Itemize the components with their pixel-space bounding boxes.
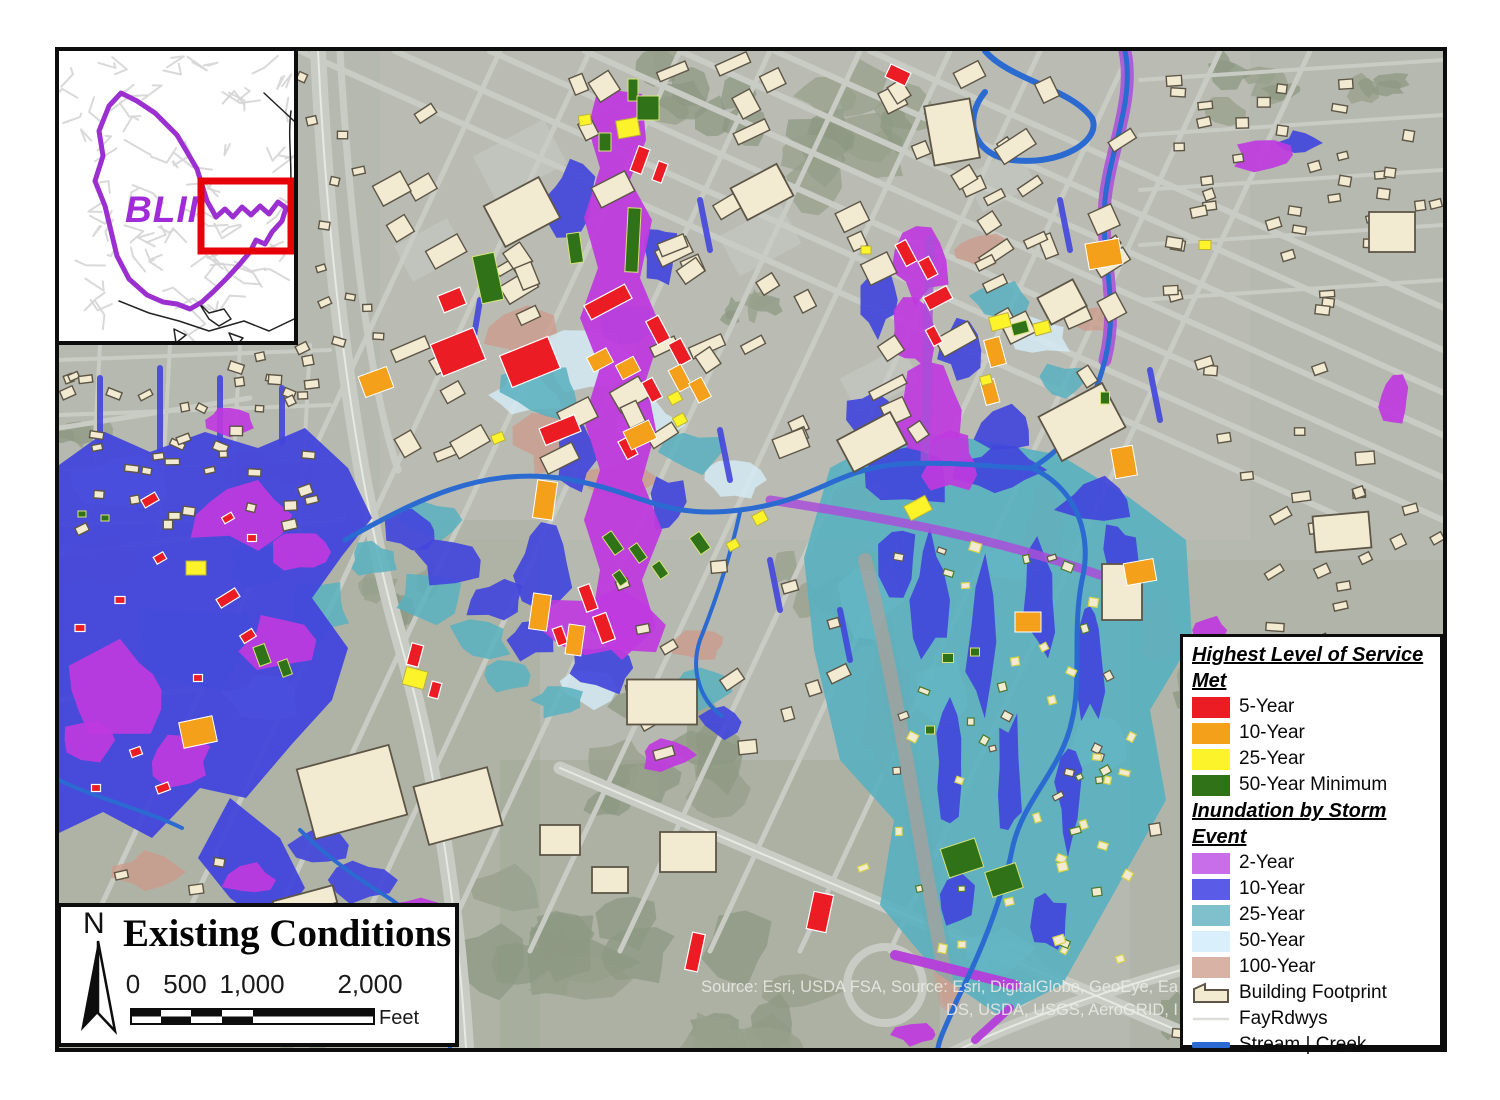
legend-item-label: 25-Year xyxy=(1239,748,1305,770)
inset-locator-map: BLII xyxy=(55,47,298,345)
legend-swatch xyxy=(1192,775,1230,796)
legend-los-items: 5-Year10-Year25-Year50-Year Minimum xyxy=(1192,694,1434,798)
legend-item-label: 100-Year xyxy=(1239,956,1315,978)
legend-swatch xyxy=(1192,981,1230,1005)
scale-tick-500: 500 xyxy=(163,969,206,1000)
source-line-1: Source: Esri, USDA FSA, Source: Esri, Di… xyxy=(701,976,1178,999)
source-attribution: Source: Esri, USDA FSA, Source: Esri, Di… xyxy=(701,976,1178,1022)
map-legend: Highest Level of Service Met 5-Year10-Ye… xyxy=(1180,634,1443,1048)
legend-item-label: 2-Year xyxy=(1239,852,1294,874)
legend-item-label: 25-Year xyxy=(1239,904,1305,926)
legend-item-los: 50-Year Minimum xyxy=(1192,772,1434,798)
scale-tick-1000: 1,000 xyxy=(219,969,284,1000)
legend-item-other: FayRdwys xyxy=(1192,1006,1434,1032)
legend-other-items: Building FootprintFayRdwysStream | Creek xyxy=(1192,980,1434,1058)
legend-item-los: 5-Year xyxy=(1192,694,1434,720)
north-arrow-icon xyxy=(69,935,127,1037)
scale-tick-2000: 2,000 xyxy=(337,969,402,1000)
legend-item-other: Stream | Creek xyxy=(1192,1032,1434,1058)
map-document: Source: Esri, USDA FSA, Source: Esri, Di… xyxy=(0,0,1500,1100)
legend-swatch xyxy=(1192,879,1230,900)
legend-item-label: 10-Year xyxy=(1239,722,1305,744)
scale-tick-0: 0 xyxy=(126,969,140,1000)
legend-swatch xyxy=(1192,1007,1230,1031)
legend-item-los: 10-Year xyxy=(1192,720,1434,746)
legend-item-storm: 10-Year xyxy=(1192,876,1434,902)
legend-swatch xyxy=(1192,853,1230,874)
legend-item-storm: 25-Year xyxy=(1192,902,1434,928)
title-box: N Existing Conditions 0 500 1,000 2,000 … xyxy=(57,903,459,1047)
source-line-2: DS, USDA, USGS, AeroGRID, I xyxy=(701,999,1178,1022)
legend-swatch xyxy=(1192,697,1230,718)
legend-item-label: Stream | Creek xyxy=(1239,1034,1366,1056)
inset-watershed-label: BLII xyxy=(125,189,199,231)
legend-item-label: Building Footprint xyxy=(1239,982,1387,1004)
legend-item-label: 10-Year xyxy=(1239,878,1305,900)
legend-item-label: FayRdwys xyxy=(1239,1008,1328,1030)
legend-swatch xyxy=(1192,723,1230,744)
legend-item-label: 50-Year xyxy=(1239,930,1305,952)
legend-swatch xyxy=(1192,931,1230,952)
scale-bar xyxy=(130,1008,376,1026)
legend-item-other: Building Footprint xyxy=(1192,980,1434,1006)
scale-unit-label: Feet xyxy=(379,1007,419,1030)
legend-item-storm: 50-Year xyxy=(1192,928,1434,954)
map-title: Existing Conditions xyxy=(123,911,451,956)
legend-swatch xyxy=(1192,749,1230,770)
legend-storm-items: 2-Year10-Year25-Year50-Year100-Year xyxy=(1192,850,1434,980)
legend-item-storm: 2-Year xyxy=(1192,850,1434,876)
legend-item-storm: 100-Year xyxy=(1192,954,1434,980)
legend-item-label: 50-Year Minimum xyxy=(1239,774,1387,796)
legend-swatch xyxy=(1192,957,1230,978)
legend-heading-los: Highest Level of Service Met xyxy=(1192,642,1434,694)
legend-item-label: 5-Year xyxy=(1239,696,1294,718)
legend-swatch xyxy=(1192,1033,1230,1057)
legend-swatch xyxy=(1192,905,1230,926)
legend-item-los: 25-Year xyxy=(1192,746,1434,772)
legend-heading-storm: Inundation by Storm Event xyxy=(1192,798,1434,850)
